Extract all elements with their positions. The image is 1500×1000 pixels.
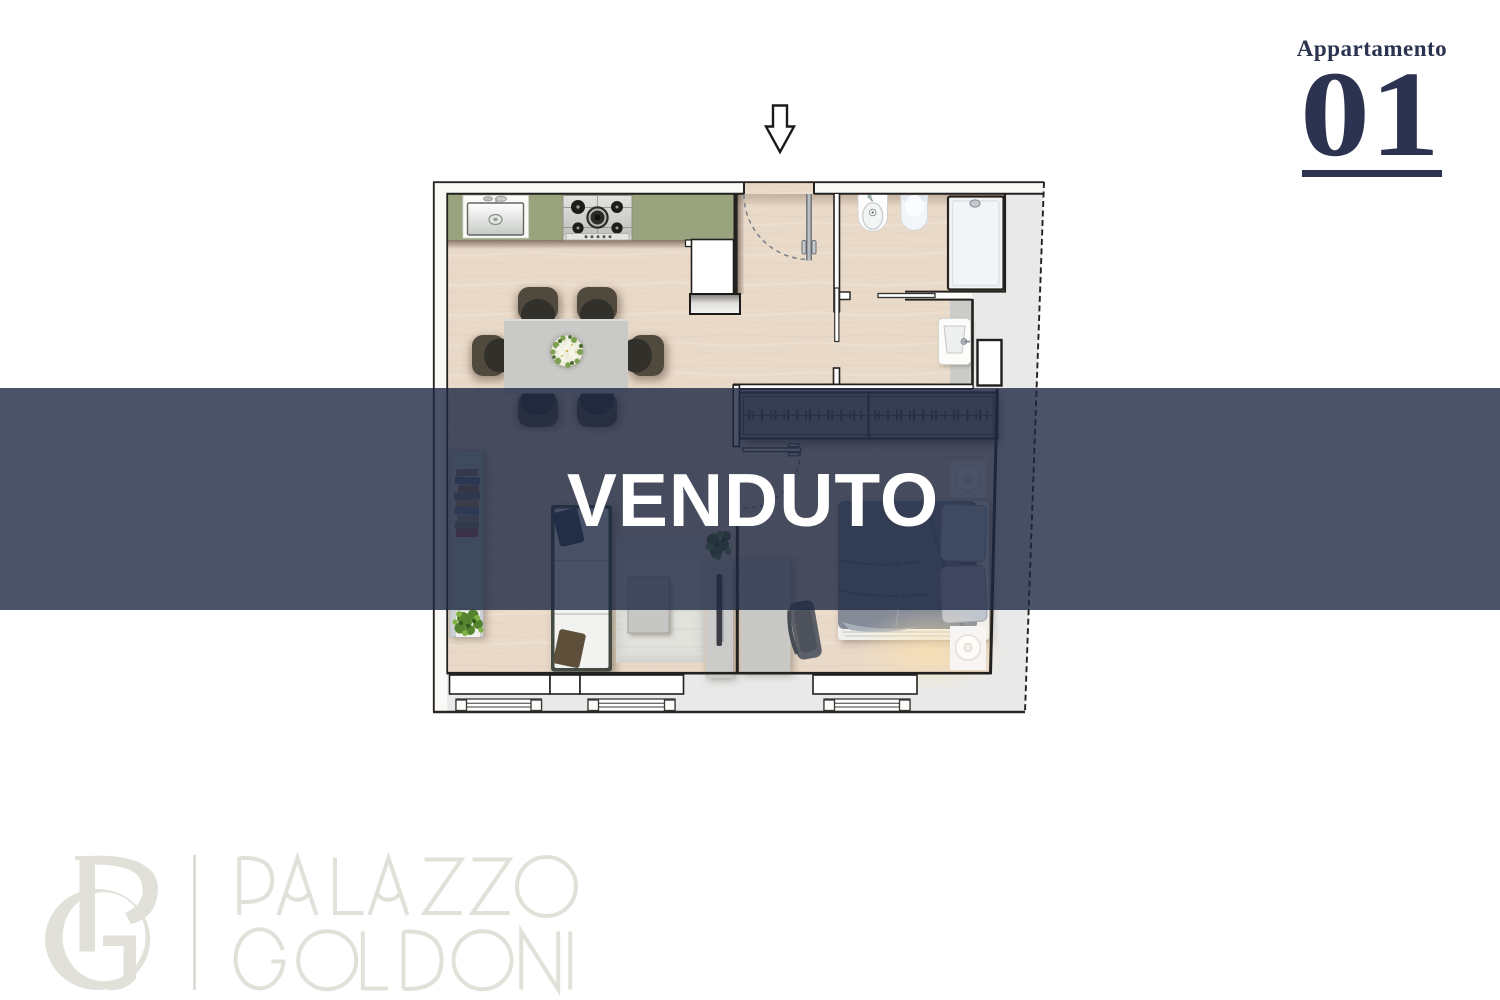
svg-text:01: 01	[1300, 47, 1440, 182]
